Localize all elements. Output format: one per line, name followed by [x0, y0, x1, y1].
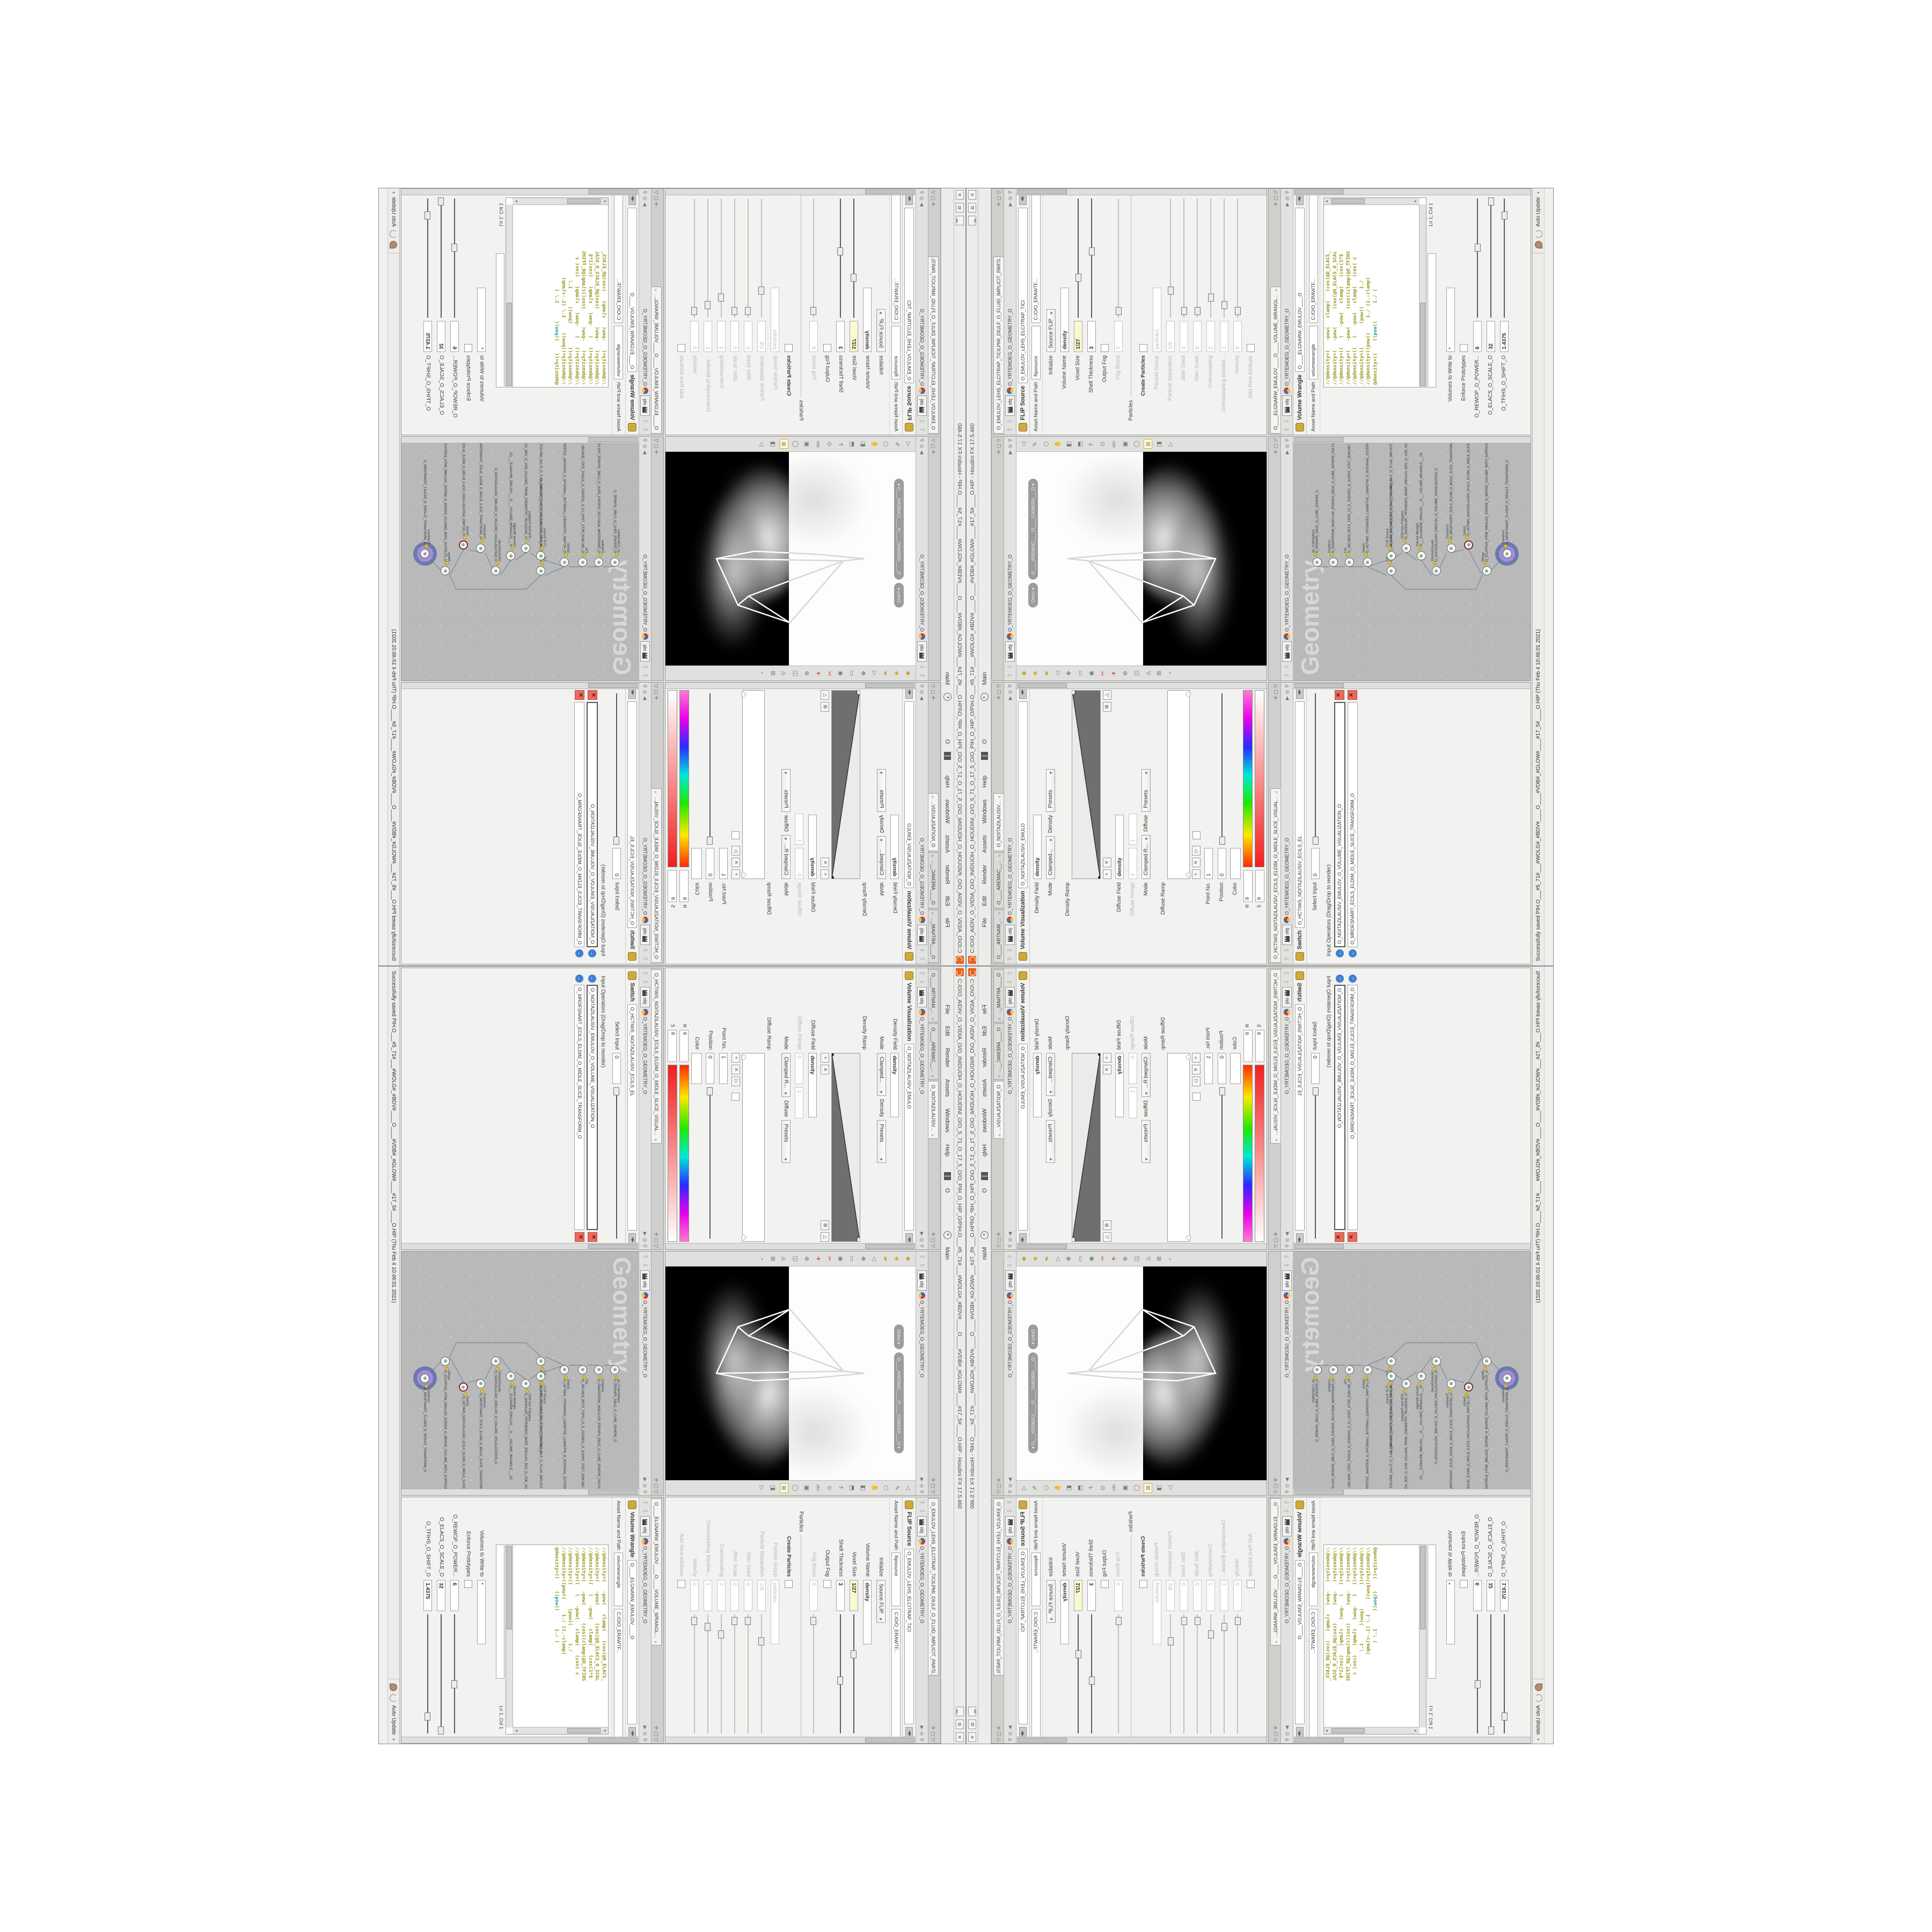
network-path[interactable]: O_YRTEMOEG_O_GEOMETRY_O — [1007, 1546, 1013, 1623]
parameter-slider[interactable] — [1474, 1614, 1481, 1733]
restore-button[interactable]: ⧉ — [956, 203, 964, 213]
diffuse-ramp-checkbox[interactable] — [732, 831, 740, 839]
network-node[interactable] — [441, 1357, 450, 1366]
display-option-icon[interactable]: ◁ — [1020, 440, 1028, 449]
ramp-tri-button[interactable]: △ — [821, 690, 829, 700]
parameter-field[interactable]: 3 — [837, 321, 845, 352]
path-icon[interactable]: ▶ — [1007, 1232, 1013, 1236]
node-flag-dot[interactable] — [582, 553, 586, 557]
diffuse-ramp-del-button[interactable]: ✕ — [731, 858, 740, 867]
nav-down-icon[interactable]: ⇩ — [919, 1262, 926, 1269]
path-icon[interactable]: ◎ — [1284, 444, 1290, 449]
diffuse-range-lo[interactable]: 0 — [1129, 848, 1137, 879]
diffuse-mode-dropdown[interactable]: Clamped R... — [781, 835, 791, 879]
display-option-icon[interactable]: ◁ — [1020, 1483, 1028, 1493]
pane-control-icon[interactable]: ✛ — [930, 696, 936, 700]
parameter-slider[interactable] — [718, 199, 725, 318]
desktop-layout-icon[interactable] — [944, 752, 951, 760]
slider-handle[interactable] — [451, 244, 457, 252]
path-icon[interactable]: ◎ — [1284, 1732, 1290, 1736]
path-icon[interactable]: ⚲ — [919, 191, 925, 194]
pane-control-icon[interactable]: ✛ — [1273, 202, 1279, 206]
display-option-icon[interactable]: ⵤ — [836, 1483, 845, 1493]
asset-path-field[interactable]: C:/O/O_ERAWTF... — [892, 1609, 901, 1740]
pane-tab[interactable]: O____ARTNAM_...✕ — [928, 969, 939, 1022]
display-option-icon[interactable]: ◯ — [791, 440, 800, 449]
ramp-point-marker[interactable] — [857, 1237, 860, 1242]
path-icon[interactable]: ▶ — [919, 450, 925, 454]
ramp-point-start[interactable] — [1098, 1053, 1101, 1056]
parameter-slider[interactable] — [1167, 199, 1174, 318]
scene-tool-icon[interactable]: ✈ — [1110, 1254, 1118, 1264]
slider-handle[interactable] — [425, 211, 430, 219]
obj-breadcrumb[interactable]: obj — [917, 925, 927, 945]
node-flag-dot[interactable] — [495, 1367, 499, 1371]
snippet-footer-field[interactable] — [496, 1545, 504, 1679]
pane-control-icon[interactable]: ▽ — [996, 1244, 1002, 1248]
diffuse-ramp-marker-left[interactable] — [742, 872, 747, 877]
network-node[interactable] — [1387, 1372, 1396, 1381]
ramp-box-button[interactable]: ⊞ — [821, 702, 829, 712]
network-node[interactable] — [1503, 1374, 1512, 1383]
nav-up-icon[interactable]: ⇧ — [919, 1253, 926, 1260]
path-icon[interactable]: ▶ — [919, 1478, 925, 1482]
slider-handle[interactable] — [1181, 1617, 1187, 1625]
node-flag-dot[interactable] — [1448, 1389, 1452, 1393]
scrollbar-thumb[interactable] — [588, 1490, 638, 1495]
ramp-point-marker[interactable] — [857, 690, 860, 695]
parameter-dropdown[interactable]: Source FLIP — [876, 309, 885, 352]
path-icon[interactable]: ⚲ — [1007, 1738, 1013, 1741]
parameter-field[interactable]: 0 — [1114, 321, 1123, 352]
node-flag-dot[interactable] — [1433, 561, 1437, 565]
nav-up-icon[interactable]: ⇧ — [642, 970, 649, 977]
network-node[interactable] — [1363, 558, 1372, 567]
desktop-selector[interactable]: Main — [982, 1241, 988, 1266]
hsv-field-S[interactable]: 0 — [668, 1030, 677, 1062]
parameter-slider[interactable] — [1115, 1614, 1122, 1733]
ramp-add-button[interactable]: + — [821, 1053, 829, 1063]
pane-scrollbar[interactable] — [1293, 1737, 1531, 1743]
density-presets-button[interactable]: Presets — [877, 1120, 886, 1163]
parameter-field[interactable]: 0 — [1180, 321, 1188, 352]
node-flag-dot[interactable] — [425, 1384, 428, 1388]
nav-up-icon[interactable]: ⇧ — [1007, 1499, 1014, 1506]
parameter-field[interactable]: 0 — [810, 321, 818, 352]
slider-handle[interactable] — [718, 294, 724, 302]
scene-tool-icon[interactable]: ◬ — [780, 669, 788, 678]
slider-handle[interactable] — [1089, 1677, 1095, 1685]
scrollbar-thumb[interactable] — [1294, 1490, 1344, 1495]
node-flag-dot[interactable] — [510, 546, 514, 550]
pane-tab[interactable]: O____ELGNARW_EMULOV____O____VOLUME_WRANG… — [652, 287, 662, 434]
slider-handle[interactable] — [1195, 307, 1201, 315]
diffuse-ramp-next-button[interactable]: ▷ — [1192, 846, 1201, 855]
path-icon[interactable]: ◎ — [919, 1484, 925, 1488]
path-icon[interactable]: ◎ — [642, 1238, 648, 1242]
path-icon[interactable]: ⚲ — [1284, 191, 1290, 194]
display-option-icon[interactable]: ◁ — [904, 440, 912, 449]
camera-pill[interactable]: O____AREMAC____O____CAMERA___O ▾ — [1028, 479, 1038, 580]
network-node[interactable] — [1387, 566, 1396, 575]
pane-scrollbar[interactable] — [401, 189, 639, 195]
nav-up-icon[interactable]: ⇧ — [1284, 672, 1291, 679]
pane-tab[interactable]: O_EMULOV_LEHS_ELCITRAP_TICILPMI_DIULF_O_… — [928, 1498, 939, 1675]
parameter-field[interactable]: * — [478, 288, 486, 352]
pane-tab[interactable]: O_NOITAZILAUSIV...✕ — [993, 793, 1004, 851]
network-node[interactable] — [1482, 1357, 1491, 1366]
node-flag-dot[interactable] — [1388, 561, 1392, 565]
pane-control-icon[interactable]: ▢ — [1273, 196, 1279, 201]
pane-tab[interactable]: O____ARTNAM_...✕ — [993, 969, 1004, 1022]
node-flag-dot[interactable] — [425, 544, 428, 548]
pane-control-icon[interactable]: ▽ — [653, 1490, 659, 1494]
select-input-field[interactable]: 0 — [613, 1053, 621, 1084]
pane-tab[interactable]: O_EMULOV_LEHS_ELCITRAP_TICILPMI_DIULF_O_… — [993, 1498, 1004, 1675]
restore-button[interactable]: ⧉ — [968, 203, 976, 213]
remove-input-button[interactable]: ✕ — [1348, 1232, 1357, 1242]
parameter-field[interactable]: particles — [771, 1580, 780, 1644]
display-option-icon[interactable]: ▣ — [802, 1483, 811, 1493]
nav-down-icon[interactable]: ⇩ — [1007, 418, 1014, 425]
network-node[interactable] — [594, 1365, 603, 1374]
parameter-field[interactable]: density — [1060, 1580, 1069, 1644]
display-option-icon[interactable]: ⬒ — [847, 440, 856, 449]
scene-tool-icon[interactable]: ◉ — [836, 1254, 845, 1264]
code-vscrollbar[interactable]: ▲▼ — [1324, 198, 1419, 205]
parameter-slider[interactable] — [1167, 1614, 1174, 1733]
pane-tab[interactable]: O____AREMAC__...✕ — [993, 852, 1004, 909]
asset-name-field[interactable]: flipsource — [1031, 326, 1041, 379]
parameter-checkbox[interactable] — [823, 344, 831, 352]
hsv-field-H[interactable]: 0 — [680, 870, 689, 902]
path-icon[interactable]: ▶ — [1007, 202, 1013, 206]
scene-tool-icon[interactable]: ◁ — [1053, 1254, 1062, 1264]
parameter-field[interactable]: 0 — [1233, 321, 1242, 352]
pane-control-icon[interactable]: ✛ — [996, 1726, 1002, 1730]
slider-handle[interactable] — [758, 287, 764, 295]
close-button[interactable]: ✕ — [968, 190, 976, 200]
node-name-field[interactable]: O_NOITAZILAUSIV_EMULO — [904, 1044, 914, 1231]
path-icon[interactable]: ◎ — [919, 1732, 925, 1736]
nav-up-icon[interactable]: ⇧ — [1284, 1499, 1291, 1506]
obj-breadcrumb[interactable]: obj — [917, 396, 927, 416]
nav-up-icon[interactable]: ⇧ — [1007, 1253, 1014, 1260]
path-icon[interactable]: ◎ — [919, 196, 925, 201]
scene-tool-icon[interactable]: ◫ — [1132, 669, 1141, 678]
diffuse-presets-button[interactable]: Presets — [1141, 769, 1151, 812]
input-operator-field[interactable]: O_MROFSNART_ECILS_ELDIM_O_MIDLE_SLICE_TR… — [1348, 985, 1358, 1230]
parameter-slider[interactable] — [1234, 199, 1241, 318]
scrollbar-thumb[interactable] — [1294, 1738, 1344, 1743]
node-flag-dot[interactable] — [1433, 1367, 1437, 1371]
network-node[interactable] — [521, 544, 530, 553]
close-tab-icon[interactable]: ✕ — [996, 1670, 1004, 1673]
minimize-button[interactable]: ▁ — [956, 1707, 964, 1716]
network-path[interactable]: O_YRTEMOEG_O_GEOMETRY_O — [642, 1546, 648, 1623]
path-icon[interactable]: ▶ — [919, 1726, 925, 1730]
menu-file[interactable]: File — [945, 912, 951, 933]
display-option-icon[interactable]: ◨ — [1155, 1483, 1163, 1493]
pane-control-icon[interactable]: ▽ — [1273, 1738, 1279, 1741]
pane-control-icon[interactable]: ▢ — [653, 1732, 659, 1737]
menu-render[interactable]: Render — [945, 859, 951, 890]
node-flag-dot[interactable] — [1403, 1389, 1407, 1393]
network-path[interactable]: O_YRTEMOEG_O_GEOMETRY_O — [1284, 1546, 1290, 1623]
network-path[interactable]: O_YRTEMOEG_O_GEOMETRY_O — [1284, 838, 1290, 915]
obj-breadcrumb[interactable]: obj — [1282, 925, 1292, 945]
scene-tool-icon[interactable]: ✈ — [814, 669, 822, 678]
path-icon[interactable]: ◎ — [1284, 1238, 1290, 1242]
node-name-field[interactable]: O_HCTIWS_NOITAZILAUSIV_ECILS_EL — [1295, 701, 1305, 928]
network-node[interactable] — [536, 551, 545, 560]
network-path[interactable]: O_YRTEMOEG_O_GEOMETRY_O — [1284, 1017, 1290, 1094]
node-name-field[interactable]: O_NOITAZILAUSIV_EMULO — [1018, 1044, 1028, 1231]
pane-tab[interactable]: O_HCTIWS_NOITAZILAUSIV_ECILS_ELDIM_O_MID… — [1270, 969, 1280, 1144]
path-icon[interactable]: ◎ — [919, 690, 925, 694]
code-vscrollbar[interactable]: ▲▼ — [513, 1727, 608, 1734]
display-option-icon[interactable]: ✎ — [892, 440, 901, 449]
remove-input-button[interactable]: ✕ — [575, 690, 584, 700]
slider-handle[interactable] — [851, 274, 857, 282]
pane-control-icon[interactable]: ▢ — [1273, 1484, 1279, 1489]
position-field[interactable]: 0 — [706, 1053, 715, 1084]
nav-up-icon[interactable]: ⇧ — [919, 672, 926, 679]
pane-control-icon[interactable]: ▢ — [653, 196, 659, 201]
parameter-field[interactable]: * — [478, 1580, 486, 1644]
snippet-footer-field[interactable] — [1428, 1545, 1436, 1679]
pane-control-icon[interactable]: ▢ — [1273, 1732, 1279, 1737]
path-icon[interactable]: ▶ — [642, 696, 648, 700]
display-option-icon[interactable]: ⊙ — [1099, 440, 1107, 449]
diffuse-ramp-marker-right[interactable] — [742, 1235, 747, 1240]
path-icon[interactable]: ⚲ — [642, 1244, 648, 1248]
path-icon[interactable]: ◎ — [1007, 1484, 1013, 1488]
path-icon[interactable]: ⚲ — [642, 1738, 648, 1741]
close-tab-icon[interactable]: ✕ — [928, 854, 936, 858]
nav-down-icon[interactable]: ⇩ — [642, 1262, 649, 1269]
scene-tool-icon[interactable]: ▰ — [1042, 669, 1051, 678]
parameter-slider[interactable] — [1474, 199, 1481, 318]
ramp-point-marker[interactable] — [1072, 1237, 1075, 1242]
nav-down-icon[interactable]: ⇩ — [919, 978, 926, 985]
pane-tab[interactable]: O_HCTIWS_NOITAZILAUSIV_ECILS_ELDIM_O_MID… — [1270, 788, 1280, 963]
display-option-icon[interactable]: ⬒ — [847, 1483, 856, 1493]
slider-handle[interactable] — [810, 307, 816, 315]
scrollbar-thumb[interactable] — [865, 683, 914, 688]
display-option-icon[interactable]: ⵤ — [1087, 1483, 1096, 1493]
asset-name-field[interactable]: volumewrangle — [1309, 1553, 1318, 1606]
pane-control-icon[interactable]: ✛ — [653, 202, 659, 206]
slider-handle[interactable] — [837, 247, 843, 255]
parameter-dropdown[interactable]: Source FLIP — [1046, 309, 1056, 352]
pane-control-icon[interactable]: ✛ — [930, 1232, 936, 1236]
parameter-checkbox[interactable] — [1247, 1580, 1255, 1588]
slider-handle[interactable] — [1488, 197, 1494, 206]
parameter-field[interactable]: 3 — [1087, 1580, 1096, 1611]
parameter-slider[interactable] — [425, 199, 431, 318]
pane-scrollbar[interactable] — [665, 1737, 916, 1743]
parameter-slider[interactable] — [1207, 199, 1214, 318]
select-input-field[interactable]: 0 — [1311, 848, 1320, 879]
close-tab-icon[interactable]: ✕ — [928, 1018, 936, 1021]
scene-tool-icon[interactable]: ✥ — [859, 1254, 867, 1264]
close-tab-icon[interactable]: ✕ — [652, 791, 660, 794]
display-option-icon[interactable]: ⊞ — [1144, 440, 1152, 449]
nav-up-icon[interactable]: ⇧ — [1007, 955, 1014, 962]
position-field[interactable]: 0 — [706, 848, 715, 879]
pane-control-icon[interactable]: ✛ — [653, 696, 659, 700]
node-flag-dot[interactable] — [463, 536, 467, 539]
code-hscroll-thumb[interactable] — [1420, 303, 1425, 386]
nav-up-icon[interactable]: ⇧ — [919, 1499, 926, 1506]
scene-tool-icon[interactable]: ✂ — [1099, 1254, 1107, 1264]
hsv-slider-H[interactable] — [679, 1065, 689, 1242]
pane-tab[interactable]: O_NOITAZILAUSIV...✕ — [928, 793, 939, 851]
menu-assets[interactable]: Assets — [982, 1073, 988, 1103]
parameter-slider[interactable] — [691, 1614, 698, 1733]
close-button[interactable]: ✕ — [956, 1732, 964, 1742]
slider-handle[interactable] — [705, 1623, 711, 1631]
node-flag-dot[interactable] — [1504, 1384, 1507, 1388]
pane-tab[interactable]: O____AREMAC__...✕ — [928, 852, 939, 909]
parameter-dropdown[interactable]: Source FLIP — [1046, 1580, 1056, 1623]
node-flag-dot[interactable] — [1314, 553, 1318, 557]
density-ramp-widget[interactable] — [1072, 1053, 1101, 1242]
pane-control-icon[interactable]: ▽ — [653, 191, 659, 194]
path-icon[interactable]: ◎ — [642, 444, 648, 449]
slider-handle[interactable] — [1168, 1637, 1174, 1645]
parameter-checkbox[interactable] — [677, 1580, 685, 1588]
network-path[interactable]: O_YRTEMOEG_O_GEOMETRY_O — [642, 1300, 648, 1378]
ramp-box-button[interactable]: ⊞ — [1103, 702, 1111, 712]
parameter-slider[interactable] — [1115, 199, 1122, 318]
diffuse-field[interactable]: density — [1115, 1053, 1124, 1117]
network-path[interactable]: O_YRTEMOEG_O_GEOMETRY_O — [1007, 1017, 1013, 1094]
parameter-dropdown[interactable]: Source FLIP — [876, 1580, 885, 1623]
obj-breadcrumb[interactable]: obj — [640, 925, 650, 945]
parameter-slider[interactable] — [1194, 199, 1201, 318]
close-tab-icon[interactable]: ✕ — [1272, 289, 1280, 292]
pane-tab[interactable]: O_NOITAZILAUSIV...✕ — [993, 1081, 1004, 1139]
density-field[interactable]: density — [1033, 1053, 1042, 1117]
slider-handle[interactable] — [1235, 307, 1241, 315]
density-presets-button[interactable]: Presets — [877, 769, 886, 812]
slider-handle[interactable] — [1235, 1617, 1241, 1625]
diffuse-ramp-add-button[interactable]: + — [731, 1053, 740, 1063]
hsv-field-S[interactable]: 0 — [668, 870, 677, 902]
ortho-pill[interactable]: Ortho ▾ — [894, 1324, 904, 1349]
parameter-field[interactable]: 0 — [1233, 1580, 1242, 1611]
path-icon[interactable]: ◎ — [1284, 1484, 1290, 1488]
parameter-slider[interactable] — [438, 1614, 445, 1733]
display-option-icon[interactable]: ⊞ — [780, 440, 788, 449]
node-flag-dot[interactable] — [1465, 536, 1469, 539]
pane-control-icon[interactable]: ▢ — [996, 1484, 1002, 1489]
diffuse-ramp-add-button[interactable]: + — [731, 869, 740, 879]
snippet-footer-field[interactable] — [496, 253, 504, 387]
input-operator-field[interactable]: O_MROFSNART_ECILS_ELDIM_O_MIDLE_SLICE_TR… — [575, 702, 585, 947]
hsv-field-H[interactable]: 0 — [680, 1030, 689, 1062]
slider-handle[interactable] — [1116, 307, 1122, 315]
pane-control-icon[interactable]: ▽ — [996, 684, 1002, 688]
node-name-field[interactable]: O_EMULOV_LEHS_ELCITRAP_TICI — [904, 208, 914, 383]
nav-down-icon[interactable]: ⇩ — [919, 947, 926, 954]
path-icon[interactable]: ◎ — [642, 1732, 648, 1736]
asset-path-field[interactable]: C:/O/O_ERAWTF... — [1031, 1609, 1041, 1740]
obj-breadcrumb[interactable]: obj — [1005, 396, 1015, 416]
close-tab-icon[interactable]: ✕ — [928, 259, 936, 262]
nav-down-icon[interactable]: ⇩ — [919, 1507, 926, 1514]
scrollbar-thumb[interactable] — [588, 1244, 638, 1249]
parameter-field[interactable]: 1.4375 — [1500, 321, 1509, 352]
path-icon[interactable]: ▶ — [1284, 202, 1290, 206]
slider-handle[interactable] — [745, 307, 751, 315]
network-path[interactable]: O_YRTEMOEG_O_GEOMETRY_O — [919, 309, 925, 386]
hsv-field-H[interactable]: 0 — [1243, 870, 1253, 902]
parameter-checkbox[interactable] — [823, 1580, 831, 1588]
parameter-field[interactable]: 6 — [1473, 1580, 1482, 1611]
close-tab-icon[interactable]: ✕ — [996, 1075, 1004, 1078]
node-flag-dot[interactable] — [1346, 1375, 1350, 1379]
parameter-field[interactable]: density — [863, 288, 872, 352]
close-tab-icon[interactable]: ✕ — [996, 259, 1004, 262]
display-option-icon[interactable]: ✎ — [1031, 440, 1040, 449]
obj-breadcrumb[interactable]: obj — [1005, 1270, 1015, 1291]
path-icon[interactable]: ▶ — [919, 1232, 925, 1236]
reorder-arrow-icon[interactable]: ← — [589, 949, 597, 957]
select-input-slider[interactable] — [613, 693, 620, 845]
network-path[interactable]: O_YRTEMOEG_O_GEOMETRY_O — [1007, 309, 1013, 386]
network-path[interactable]: O_YRTEMOEG_O_GEOMETRY_O — [919, 1546, 925, 1623]
obj-breadcrumb[interactable]: obj — [640, 396, 650, 416]
nav-down-icon[interactable]: ⇩ — [1007, 1262, 1014, 1269]
pane-control-icon[interactable]: ✛ — [996, 1232, 1002, 1236]
pane-control-icon[interactable]: ▢ — [930, 1484, 936, 1489]
close-tab-icon[interactable]: ✕ — [928, 1075, 936, 1078]
parameter-field[interactable]: particles — [1153, 288, 1161, 352]
network-node[interactable] — [459, 1382, 468, 1392]
select-input-field[interactable]: 0 — [613, 848, 621, 879]
path-icon[interactable]: ⚲ — [642, 438, 648, 442]
menu-windows[interactable]: Windows — [982, 1103, 988, 1139]
position-slider[interactable] — [707, 1087, 714, 1239]
node-flag-dot[interactable] — [445, 561, 449, 565]
scene-tool-icon[interactable]: ✥ — [1065, 669, 1073, 678]
display-option-icon[interactable]: ◁ — [904, 1483, 912, 1493]
node-name-field[interactable]: O____ELGNARW_EMULOV____O — [627, 208, 637, 372]
scrollbar-thumb[interactable] — [865, 1738, 914, 1743]
diffuse-range-hi[interactable]: 1 — [795, 814, 804, 845]
parameter-field[interactable]: 0 — [731, 321, 740, 352]
network-node[interactable] — [521, 1379, 530, 1388]
input-operator-field[interactable]: O_NOITAZILAUSIV_EMULOV_O_VOLUME_VISUALIZ… — [1334, 702, 1345, 947]
input-operator-field[interactable]: O_MROFSNART_ECILS_ELDIM_O_MIDLE_SLICE_TR… — [1348, 702, 1358, 947]
display-option-icon[interactable]: ▣ — [1121, 440, 1130, 449]
menu-render[interactable]: Render — [945, 1042, 951, 1073]
network-node[interactable] — [578, 1365, 587, 1374]
auto-update-selector[interactable]: Auto Update — [1535, 197, 1541, 227]
pane-control-icon[interactable]: ▢ — [996, 690, 1002, 694]
obj-breadcrumb[interactable]: obj — [1282, 987, 1292, 1007]
code-vscrollbar[interactable]: ▲▼ — [1324, 1727, 1419, 1734]
display-option-icon[interactable]: ✋ — [1053, 1483, 1062, 1493]
menu-edit[interactable]: Edit — [982, 890, 988, 912]
nav-down-icon[interactable]: ⇩ — [642, 663, 649, 670]
scene-tool-icon[interactable]: ✂ — [1099, 669, 1107, 678]
slider-handle[interactable] — [1488, 1726, 1494, 1735]
density-mode-dropdown[interactable]: Clamped... — [1046, 836, 1055, 879]
